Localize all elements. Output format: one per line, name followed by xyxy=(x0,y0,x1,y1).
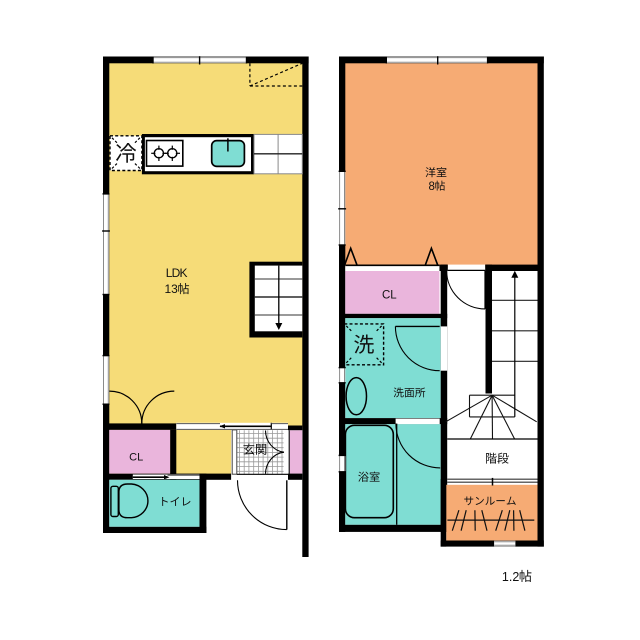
svg-text:CL: CL xyxy=(129,451,143,463)
svg-text:13: 13 xyxy=(164,282,178,296)
svg-text:1.2: 1.2 xyxy=(502,570,519,584)
svg-text:CL: CL xyxy=(382,290,397,302)
svg-text:LDK: LDK xyxy=(166,266,188,280)
svg-text:8: 8 xyxy=(428,181,434,193)
